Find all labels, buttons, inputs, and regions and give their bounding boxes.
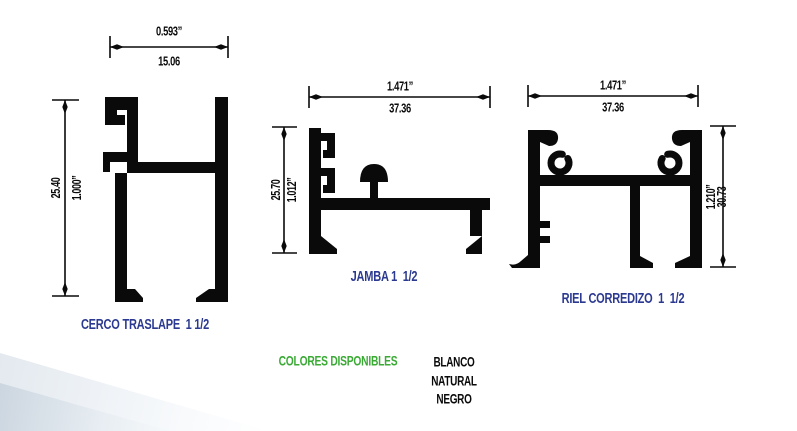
jamba-width-inches: 1.471” bbox=[387, 79, 413, 94]
cerco-height-inches: 1.000” bbox=[70, 176, 84, 201]
riel-corredizo-profile-drawing bbox=[508, 126, 702, 268]
jamba-top-hook bbox=[321, 133, 335, 158]
riel-corredizo-label: RIEL CORREDIZO 1 1/2 bbox=[562, 291, 685, 307]
cerco-crossbar bbox=[127, 162, 215, 173]
colors-available-title: COLORES DISPONIBLES bbox=[279, 354, 398, 369]
jamba-height-inches: 1.012” bbox=[285, 178, 299, 203]
riel-right-wall-foot bbox=[675, 256, 690, 268]
catalog-sheet: 0.593” 15.06 25.40 1.000” CERCO TRASLAPE… bbox=[0, 0, 797, 431]
riel-left-wall-hook-upper-arm bbox=[540, 221, 550, 228]
riel-left-top-hook bbox=[540, 130, 558, 146]
cerco-mid-hook bbox=[103, 152, 127, 172]
riel-left-wall bbox=[528, 130, 540, 268]
cerco-width-mm: 15.06 bbox=[158, 54, 180, 69]
jamba-width-mm: 37.36 bbox=[389, 101, 411, 116]
jamba-mushroom-cap bbox=[360, 164, 388, 182]
cerco-traslape-label: CERCO TRASLAPE 1 1/2 bbox=[81, 317, 209, 333]
riel-center-divider bbox=[630, 186, 640, 268]
riel-right-roller-hook bbox=[661, 154, 679, 172]
riel-left-wall-hook-lower-arm bbox=[540, 236, 550, 243]
jamba-left-foot bbox=[321, 236, 337, 254]
cerco-lower-leg-foot bbox=[115, 173, 143, 302]
riel-width-mm: 37.36 bbox=[602, 100, 624, 115]
jamba-height-mm: 25.70 bbox=[269, 180, 283, 201]
riel-height-mm: 30.73 bbox=[715, 187, 729, 208]
riel-deck-bar bbox=[528, 175, 702, 186]
jamba-right-foot bbox=[466, 236, 482, 254]
jamba-mushroom-stem bbox=[370, 180, 378, 198]
riel-divider-foot bbox=[640, 256, 653, 268]
color-option-natural: NATURAL bbox=[431, 374, 476, 389]
cerco-right-bar-foot bbox=[196, 97, 228, 302]
cerco-height-mm: 25.40 bbox=[49, 178, 63, 199]
jamba-mid-hook bbox=[321, 168, 335, 193]
cerco-width-inches: 0.593” bbox=[156, 24, 182, 39]
riel-left-roller-hook bbox=[551, 154, 569, 172]
riel-right-top-hook bbox=[672, 130, 690, 146]
jamba-left-bar bbox=[309, 128, 321, 254]
jamba-right-leg bbox=[470, 210, 482, 236]
jamba-profile-drawing bbox=[309, 128, 490, 254]
cerco-traslape-profile-drawing bbox=[103, 97, 228, 302]
color-option-blanco: BLANCO bbox=[434, 355, 475, 370]
riel-width-inches: 1.471” bbox=[600, 78, 626, 93]
color-option-negro: NEGRO bbox=[436, 392, 471, 407]
riel-left-ski-foot bbox=[509, 255, 540, 268]
cerco-upper-bar bbox=[127, 97, 138, 173]
riel-right-wall bbox=[690, 130, 702, 268]
jamba-label: JAMBA 1 1/2 bbox=[351, 269, 418, 285]
jamba-deck-bar bbox=[309, 198, 490, 210]
